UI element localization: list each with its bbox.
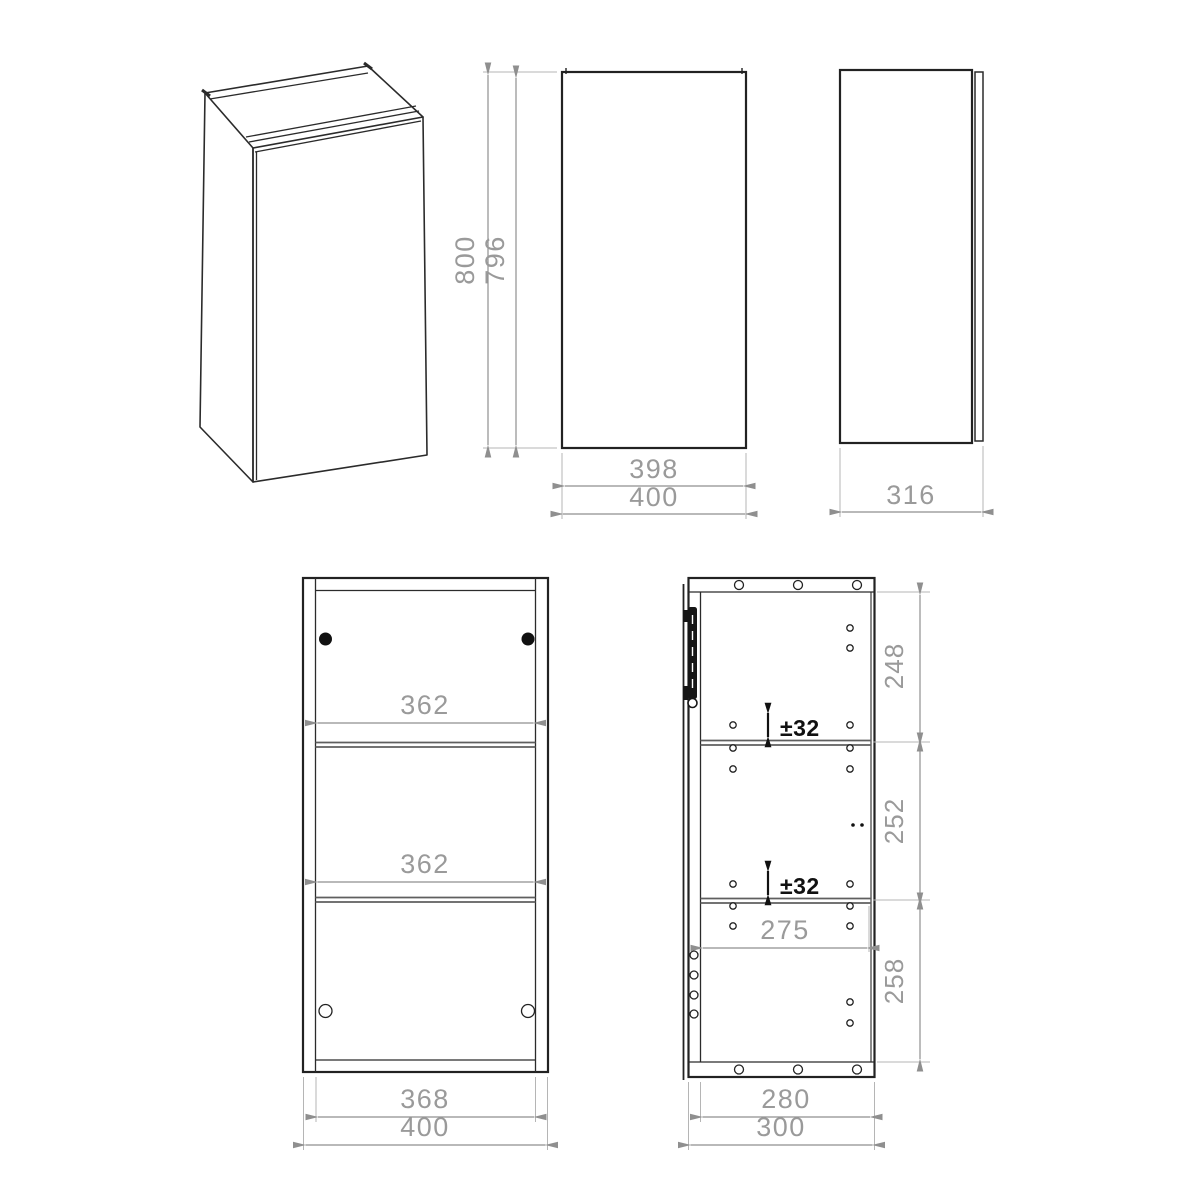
iso-left-face [200,93,253,482]
dim-label-362-bottom: 362 [400,849,450,879]
hinge-detail [683,607,697,708]
side-door-strip [975,72,983,441]
dim-label-280: 280 [761,1084,811,1114]
dim-front-height-carcass: 796 [480,78,516,445]
side-carcass-outline [840,70,972,443]
dim-label-800: 800 [450,235,480,285]
dim-seg-bottom: 258 [877,905,930,1062]
iso-view [200,63,427,482]
dim-label-248: 248 [879,643,909,689]
front-section-outline [303,578,548,1072]
dim-label-275: 275 [760,915,810,945]
front-door-outline [562,72,746,448]
side-section-view: ±32 ±32 248 252 258 275 [683,578,930,1150]
dim-side-depth-total: 316 [840,446,983,517]
dim-label-398: 398 [629,454,679,484]
dim-seg-top: 248 [873,592,930,742]
adjust-label-bottom: ±32 [780,873,820,899]
dim-label-362-top: 362 [400,690,450,720]
bottom-hole-left [319,1005,332,1018]
dim-label-400-section: 400 [400,1112,450,1142]
dim-label-400-front: 400 [629,482,679,512]
dim-label-252: 252 [879,798,909,844]
iso-front-rail-line-2 [246,106,416,137]
side-view: 316 [840,70,983,517]
bottom-hole-right [522,1005,535,1018]
front-view: 800 796 398 400 [450,68,746,519]
dim-front-width-total: 400 [563,482,745,514]
dim-label-258: 258 [879,958,909,1004]
dim-label-368: 368 [400,1084,450,1114]
iso-top-face [205,66,423,148]
front-section-view: 362 362 368 400 [303,578,548,1150]
hanging-hole-left [319,633,332,646]
hanging-hole-right [522,633,535,646]
technical-drawing-page: 800 796 398 400 316 [0,0,1200,1200]
dim-seg-mid: 252 [873,745,930,900]
dim-label-796: 796 [480,235,510,285]
dim-label-316: 316 [886,480,936,510]
iso-front-face [253,117,427,482]
adjust-label-top: ±32 [780,715,820,741]
dim-label-300: 300 [756,1112,806,1142]
iso-back-rail-line [210,73,368,99]
